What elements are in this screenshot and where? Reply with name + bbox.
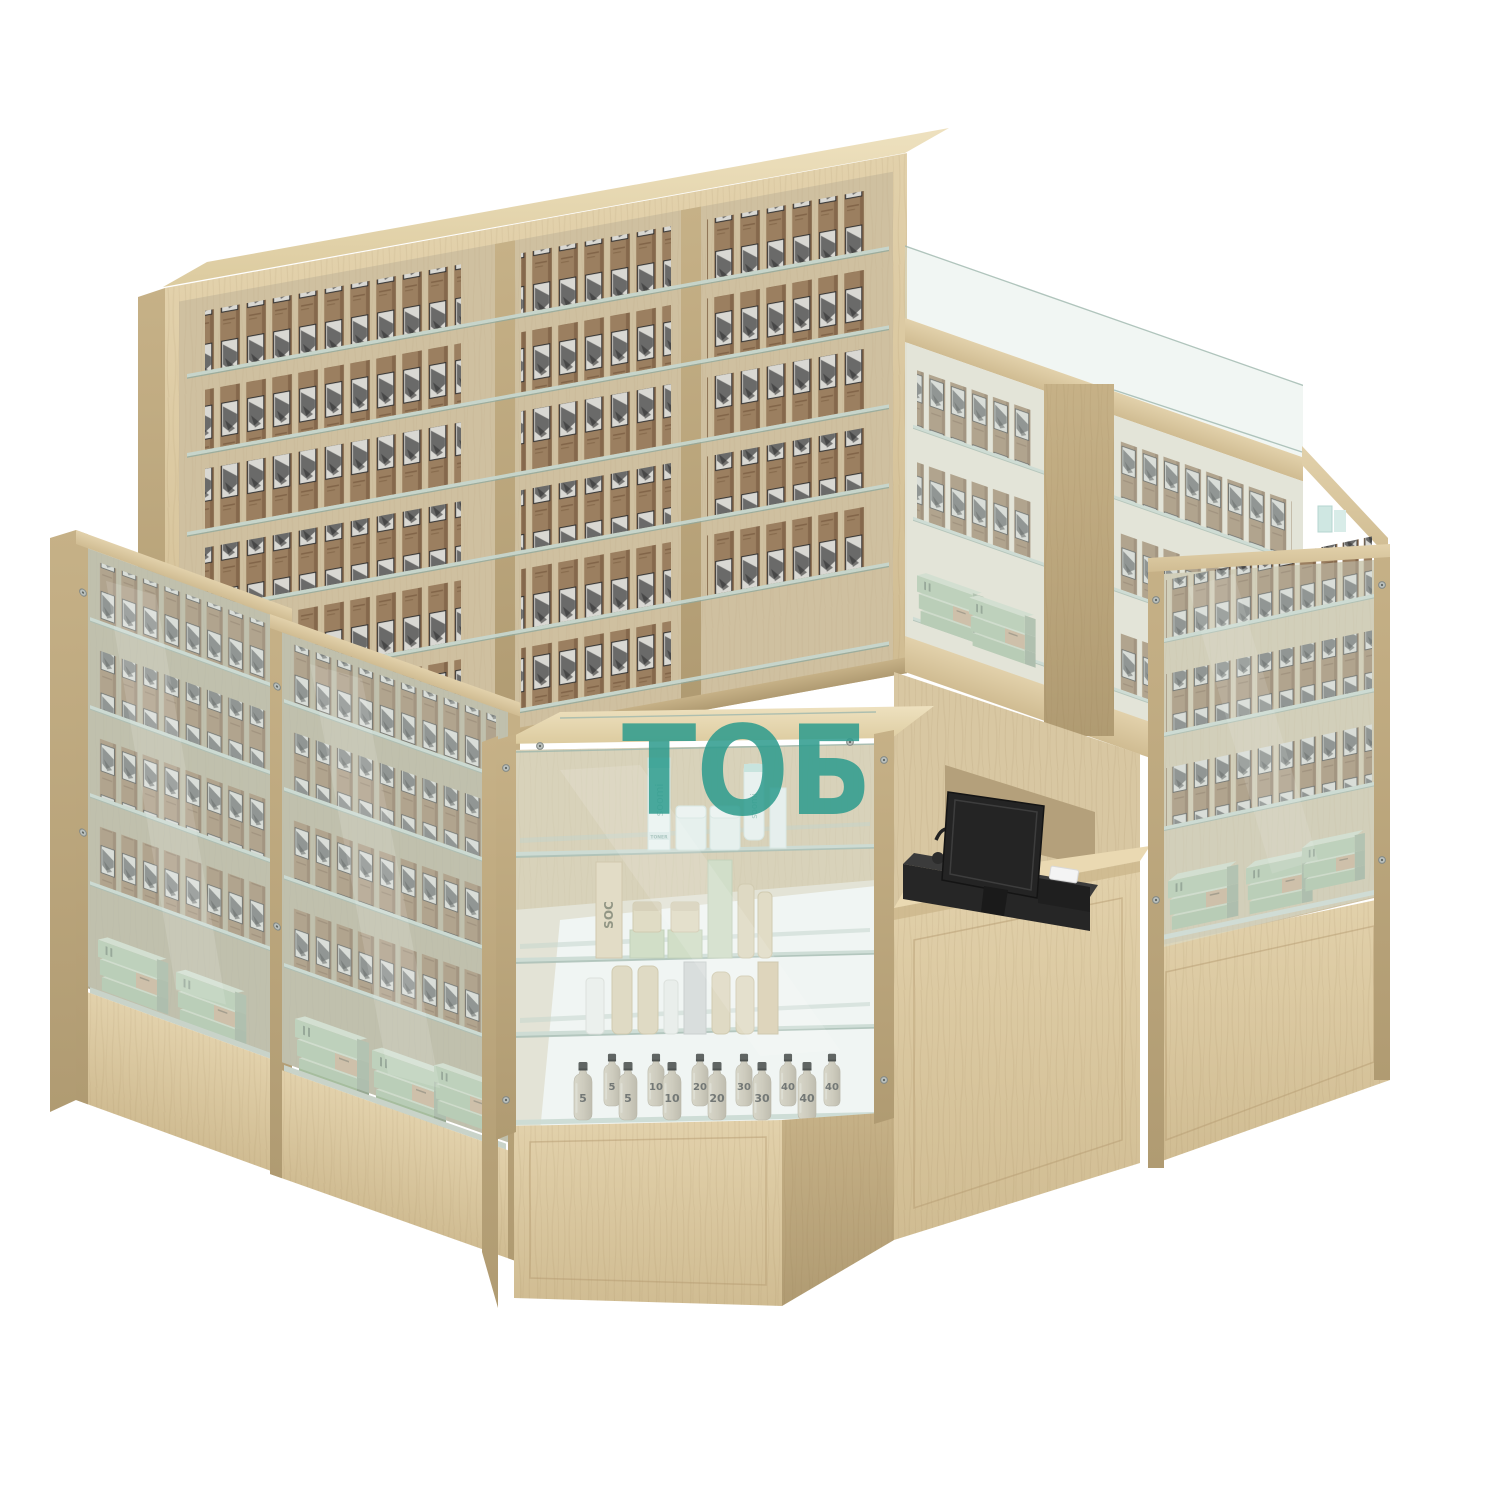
case-stile-left [76,530,88,1104]
bay-divider [681,207,701,701]
card-reader [932,852,944,864]
left-display-case-1 [50,530,292,1179]
screw-cap [1379,582,1386,589]
kiosk-render: soomi TONER soomi SOC [0,0,1500,1500]
kiosk-scene: soomi TONER soomi SOC [0,0,1500,1500]
case-stile-left [270,614,282,1178]
screw-cap [503,765,510,772]
screw-cap [1379,857,1386,864]
case-side-panel [50,530,76,1112]
screw-cap [1153,897,1160,904]
watermark-text: ТОБ [622,700,872,844]
bay-divider [495,240,515,734]
screw-cap [537,743,544,750]
case-stile-left [1148,558,1164,1168]
screw-cap [881,1077,888,1084]
screw-cap [503,1097,510,1104]
soomi-box-distant [1334,510,1346,532]
right-display-case [1148,536,1390,1168]
case-glass [1164,560,1374,947]
showcase-left-return [482,736,498,1308]
showcase-stile-left [496,734,516,1140]
monitor-stand [981,886,1008,916]
counter [894,672,1150,1240]
showcase-stile-right [874,730,894,1124]
soomi-box-distant [1318,506,1332,532]
screw-cap [1153,597,1160,604]
case-stile-right [1374,545,1390,1080]
screw-cap [881,757,888,764]
